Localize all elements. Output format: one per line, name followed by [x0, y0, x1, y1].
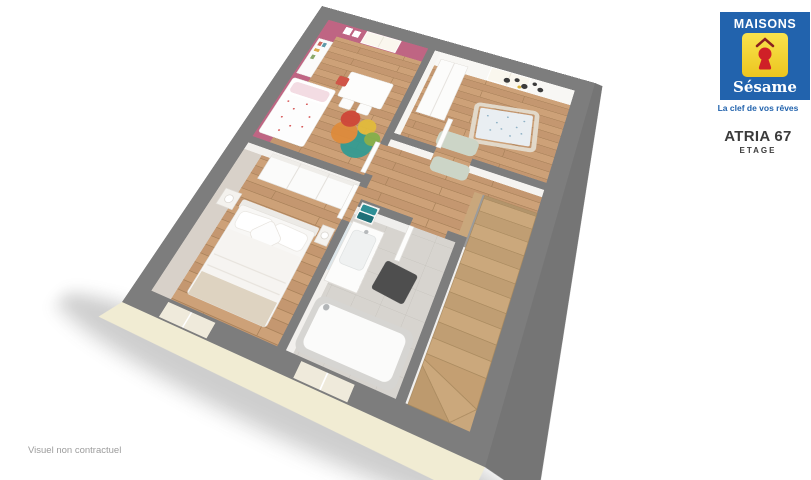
roof-icon — [757, 39, 773, 46]
disclaimer-text: Visuel non contractuel — [28, 445, 121, 456]
logo-yellow-tile — [742, 33, 788, 77]
logo-brand-bottom: Sésame — [733, 78, 797, 96]
logo-tagline: La clef de vos rêves — [705, 103, 811, 113]
plan-title: ATRIA 67 — [705, 128, 811, 145]
floorplan-render: MAISONS Sésame La clef de vos rêves ATRI… — [0, 0, 811, 480]
floorplan-3d — [122, 6, 595, 467]
keyhole-icon — [742, 33, 788, 77]
maisons-sesame-logo: MAISONS Sésame — [720, 12, 810, 100]
plan-subtitle: ETAGE — [705, 146, 811, 155]
logo-brand-top: MAISONS — [734, 17, 797, 31]
